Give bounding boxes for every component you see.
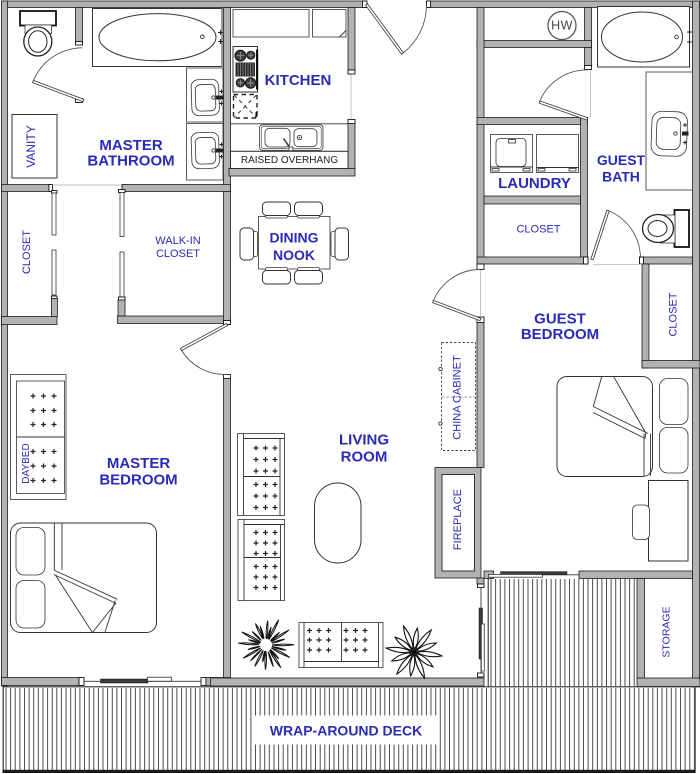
svg-text:MASTER: MASTER [99,137,163,154]
svg-text:RAISED OVERHANG: RAISED OVERHANG [241,155,338,166]
svg-text:CLOSET: CLOSET [21,230,33,274]
svg-text:FIREPLACE: FIREPLACE [452,489,464,550]
svg-text:KITCHEN: KITCHEN [265,72,332,89]
svg-text:DINING: DINING [270,230,319,246]
svg-text:VANITY: VANITY [24,125,38,167]
svg-text:ROOM: ROOM [341,449,388,466]
svg-text:BEDROOM: BEDROOM [521,326,599,343]
svg-text:CLOSET: CLOSET [516,224,560,236]
svg-text:CLOSET: CLOSET [156,248,200,260]
svg-text:CLOSET: CLOSET [668,292,680,336]
svg-text:MASTER: MASTER [107,455,171,472]
svg-text:BATH: BATH [602,169,640,185]
svg-text:DAYBED: DAYBED [21,443,32,483]
svg-text:BATHROOM: BATHROOM [87,153,174,170]
svg-text:CHINA CABINET: CHINA CABINET [452,355,464,440]
svg-text:BEDROOM: BEDROOM [99,472,177,489]
svg-text:GUEST: GUEST [597,152,646,168]
svg-text:WRAP-AROUND DECK: WRAP-AROUND DECK [270,723,422,739]
svg-text:WALK-IN: WALK-IN [155,235,200,247]
svg-text:LAUNDRY: LAUNDRY [498,175,571,192]
svg-text:LIVING: LIVING [339,432,389,449]
svg-text:HW: HW [551,19,573,33]
svg-text:STORAGE: STORAGE [661,606,673,657]
svg-text:NOOK: NOOK [273,247,315,263]
svg-text:GUEST: GUEST [534,311,586,328]
